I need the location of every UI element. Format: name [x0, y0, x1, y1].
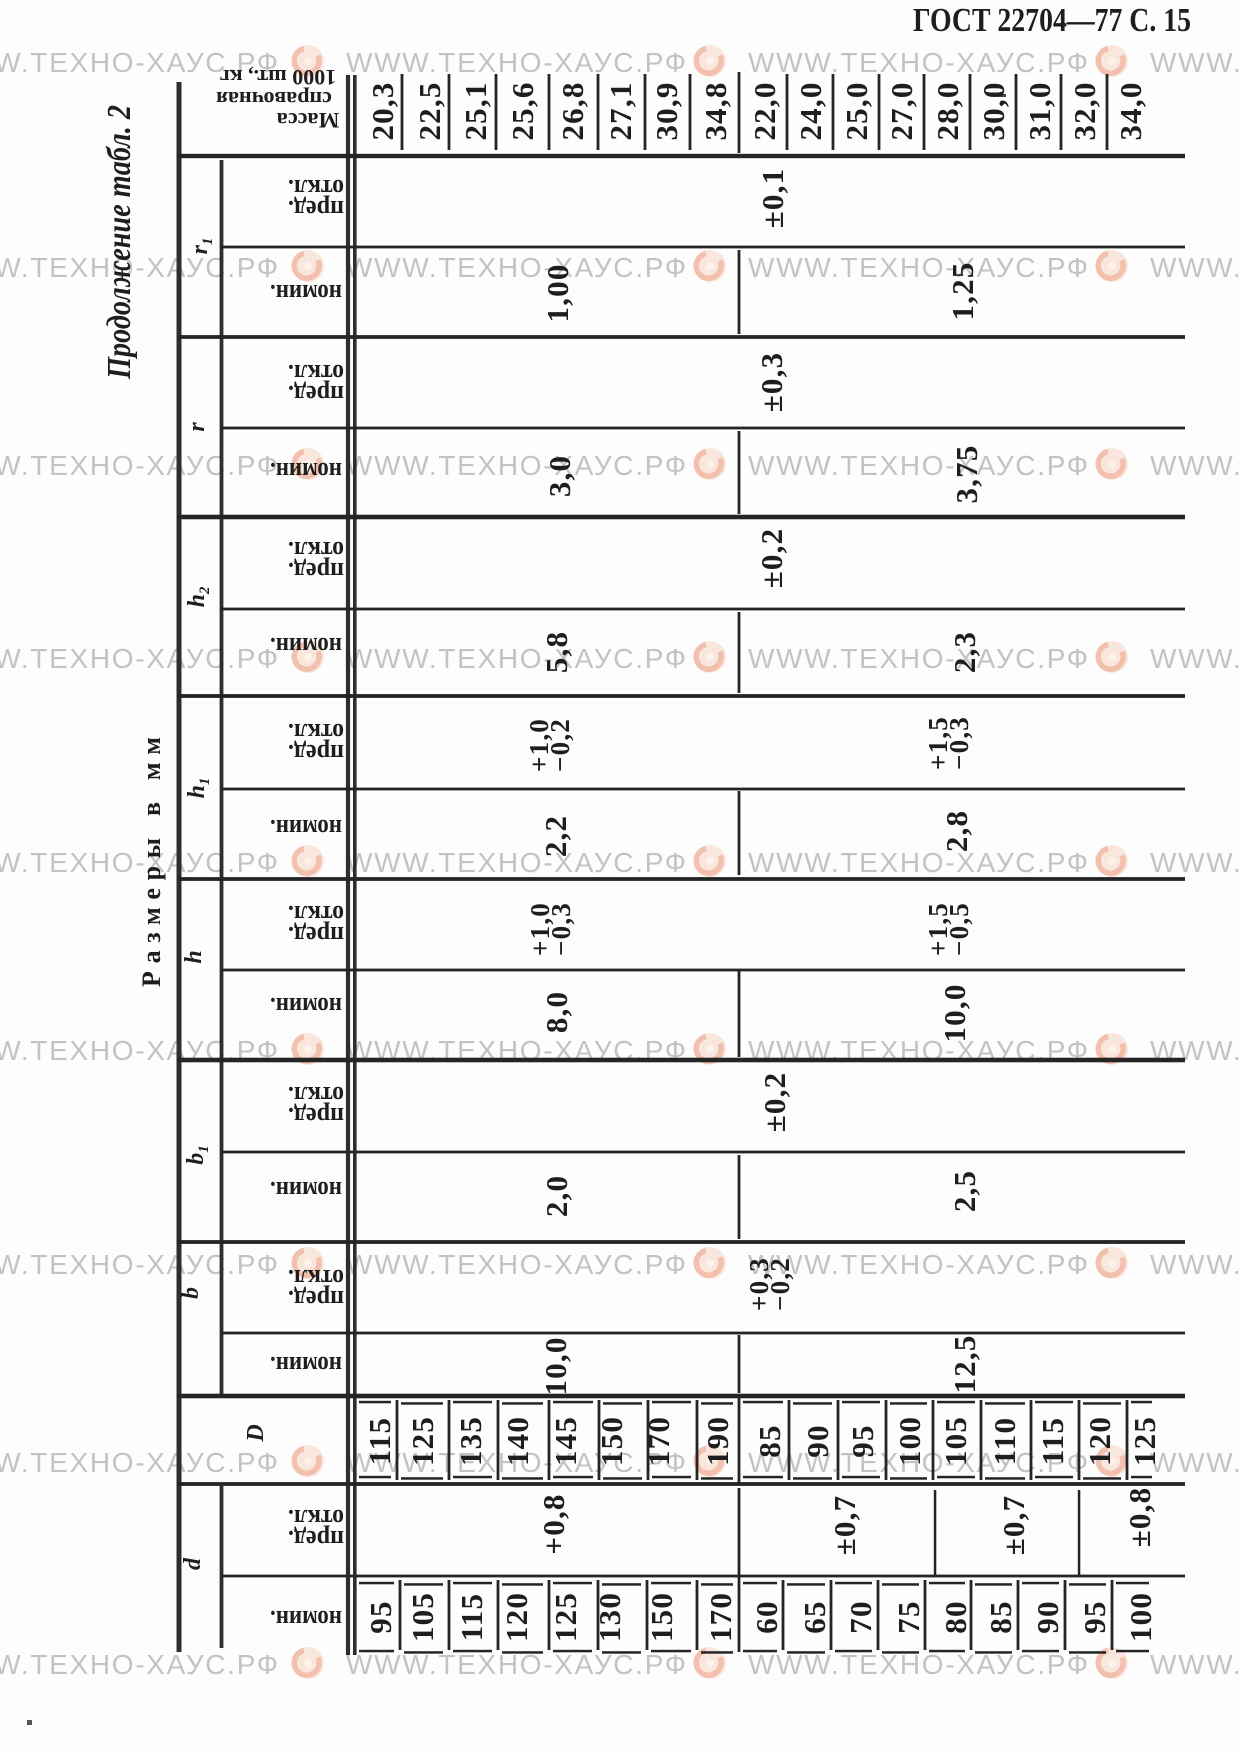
svg-text:20,3: 20,3	[365, 81, 400, 140]
svg-text:130: 130	[592, 1592, 627, 1642]
svg-text:пред.: пред.	[288, 921, 344, 950]
svg-text:WWW.ТЕХНО-ХАУС.РФ: WWW.ТЕХНО-ХАУС.РФ	[748, 847, 1090, 878]
svg-text:110: 110	[987, 1417, 1022, 1465]
svg-text:пред.: пред.	[288, 1525, 344, 1554]
svg-text:2,0: 2,0	[539, 1175, 574, 1217]
svg-text:номин.: номин.	[270, 814, 342, 843]
svg-text:170: 170	[703, 1592, 738, 1642]
svg-text:WWW.ТЕХНО-ХАУС.РФ: WWW.ТЕХНО-ХАУС.РФ	[1150, 1249, 1240, 1280]
svg-text:70: 70	[843, 1600, 878, 1633]
svg-text:WWW.ТЕХНО-ХАУС.РФ: WWW.ТЕХНО-ХАУС.РФ	[346, 450, 688, 481]
svg-text:100: 100	[892, 1416, 927, 1466]
svg-text:пред.: пред.	[288, 557, 344, 586]
svg-text:D: D	[243, 1424, 269, 1442]
svg-text:60: 60	[749, 1600, 784, 1633]
svg-text:65: 65	[797, 1600, 832, 1633]
svg-text:WWW.ТЕХНО-ХАУС.РФ: WWW.ТЕХНО-ХАУС.РФ	[0, 1447, 280, 1478]
svg-text:105: 105	[938, 1416, 973, 1466]
svg-text:номин.: номин.	[270, 1605, 342, 1634]
svg-text:−0,5: −0,5	[944, 902, 974, 956]
svg-text:95: 95	[363, 1600, 398, 1633]
svg-text:WWW.ТЕХНО-ХАУС.РФ: WWW.ТЕХНО-ХАУС.РФ	[346, 643, 688, 674]
svg-text:Продолжение табл. 2: Продолжение табл. 2	[101, 105, 138, 380]
svg-text:1000 шт., кг: 1000 шт., кг	[220, 65, 336, 90]
svg-text:2,8: 2,8	[939, 810, 974, 852]
svg-text:31,0: 31,0	[1022, 81, 1057, 140]
svg-text:80: 80	[938, 1600, 973, 1633]
svg-text:−0,2: −0,2	[545, 718, 575, 772]
svg-text:1,25: 1,25	[945, 261, 980, 320]
svg-text:3,75: 3,75	[949, 444, 984, 503]
svg-text:30,0: 30,0	[976, 81, 1011, 140]
svg-text:пред.: пред.	[288, 380, 344, 409]
svg-text:120: 120	[499, 1592, 534, 1642]
svg-text:85: 85	[983, 1600, 1018, 1633]
svg-text:75: 75	[891, 1600, 926, 1633]
svg-text:125: 125	[548, 1592, 583, 1642]
svg-text:115: 115	[1035, 1417, 1070, 1465]
svg-text:WWW.ТЕХНО-ХАУС.РФ: WWW.ТЕХНО-ХАУС.РФ	[748, 450, 1090, 481]
svg-text:±0,1: ±0,1	[755, 168, 790, 229]
svg-text:22,5: 22,5	[412, 81, 447, 140]
svg-text:пред.: пред.	[288, 1102, 344, 1131]
svg-text:WWW.ТЕХНО-ХАУС.РФ: WWW.ТЕХНО-ХАУС.РФ	[748, 252, 1090, 283]
svg-text:190: 190	[700, 1416, 735, 1466]
svg-text:27,0: 27,0	[884, 81, 919, 140]
svg-text:27,1: 27,1	[603, 81, 638, 140]
svg-text:135: 135	[453, 1416, 488, 1466]
svg-text:2,3: 2,3	[947, 631, 982, 673]
svg-text:WWW.ТЕХНО-ХАУС.РФ: WWW.ТЕХНО-ХАУС.РФ	[346, 252, 688, 283]
svg-text:WWW.ТЕХНО-ХАУС.РФ: WWW.ТЕХНО-ХАУС.РФ	[1150, 252, 1240, 283]
svg-text:−0,2: −0,2	[765, 1257, 795, 1311]
svg-text:10,0: 10,0	[937, 983, 972, 1042]
svg-text:+0,8: +0,8	[536, 1493, 571, 1554]
svg-text:±0,7: ±0,7	[996, 1495, 1031, 1556]
svg-text:2,2: 2,2	[538, 815, 573, 857]
svg-text:r1: r1	[187, 238, 216, 255]
svg-text:−0,3: −0,3	[944, 716, 974, 770]
svg-text:номин.: номин.	[270, 992, 342, 1021]
svg-text:10,0: 10,0	[538, 1336, 573, 1395]
svg-text:WWW.ТЕХНО-ХАУС.РФ: WWW.ТЕХНО-ХАУС.РФ	[748, 1249, 1090, 1280]
svg-text:±0,2: ±0,2	[754, 528, 789, 589]
svg-text:25,6: 25,6	[505, 81, 540, 140]
svg-text:пред.: пред.	[288, 739, 344, 768]
svg-text:h1: h1	[184, 778, 213, 799]
svg-text:25,1: 25,1	[458, 81, 493, 140]
svg-text:95: 95	[1077, 1600, 1112, 1633]
svg-text:WWW.ТЕХНО-ХАУС.РФ: WWW.ТЕХНО-ХАУС.РФ	[748, 643, 1090, 674]
svg-text:WWW.ТЕХНО-ХАУС.РФ: WWW.ТЕХНО-ХАУС.РФ	[1150, 450, 1240, 481]
svg-text:Масса: Масса	[277, 108, 340, 133]
svg-text:8,0: 8,0	[539, 991, 574, 1033]
svg-text:2,5: 2,5	[947, 1170, 982, 1212]
svg-text:24,0: 24,0	[793, 81, 828, 140]
svg-text:3,0: 3,0	[542, 455, 577, 497]
svg-text:WWW.ТЕХНО-ХАУС.РФ: WWW.ТЕХНО-ХАУС.РФ	[1150, 1649, 1240, 1680]
svg-text:h: h	[181, 950, 207, 963]
svg-text:WWW.ТЕХНО-ХАУС.РФ: WWW.ТЕХНО-ХАУС.РФ	[748, 47, 1090, 78]
svg-text:85: 85	[752, 1424, 787, 1457]
svg-text:WWW.ТЕХНО-ХАУС.РФ: WWW.ТЕХНО-ХАУС.РФ	[0, 252, 280, 283]
svg-text:номин.: номин.	[270, 457, 342, 486]
svg-text:номин.: номин.	[270, 279, 342, 308]
svg-text:WWW.ТЕХНО-ХАУС.РФ: WWW.ТЕХНО-ХАУС.РФ	[1150, 643, 1240, 674]
svg-text:WWW.ТЕХНО-ХАУС.РФ: WWW.ТЕХНО-ХАУС.РФ	[0, 1249, 280, 1280]
svg-text:105: 105	[405, 1592, 440, 1642]
svg-text:±0,7: ±0,7	[827, 1495, 862, 1556]
svg-text:22,0: 22,0	[747, 81, 782, 140]
svg-text:номин.: номин.	[270, 632, 342, 661]
svg-text:95: 95	[845, 1424, 880, 1457]
svg-text:WWW.ТЕХНО-ХАУС.РФ: WWW.ТЕХНО-ХАУС.РФ	[346, 1249, 688, 1280]
svg-text:25,0: 25,0	[839, 81, 874, 140]
svg-text:125: 125	[1127, 1416, 1162, 1466]
svg-text:28,0: 28,0	[930, 81, 965, 140]
svg-text:WWW.ТЕХНО-ХАУС.РФ: WWW.ТЕХНО-ХАУС.РФ	[0, 450, 280, 481]
svg-text:d: d	[180, 1557, 206, 1570]
svg-text:125: 125	[405, 1416, 440, 1466]
svg-text:WWW.ТЕХНО-ХАУС.РФ: WWW.ТЕХНО-ХАУС.РФ	[346, 847, 688, 878]
svg-text:1,00: 1,00	[540, 263, 575, 322]
svg-text:150: 150	[644, 1592, 679, 1642]
svg-text:115: 115	[454, 1593, 489, 1641]
svg-text:±0,2: ±0,2	[757, 1072, 792, 1133]
svg-text:120: 120	[1082, 1416, 1117, 1466]
svg-text:90: 90	[1030, 1600, 1065, 1633]
svg-text:26,8: 26,8	[555, 81, 590, 140]
svg-text:h2: h2	[184, 586, 213, 607]
svg-text:±0,3: ±0,3	[754, 352, 789, 413]
svg-text:100: 100	[1123, 1592, 1158, 1642]
svg-text:WWW.ТЕХНО-ХАУС.РФ: WWW.ТЕХНО-ХАУС.РФ	[1150, 847, 1240, 878]
svg-text:12,5: 12,5	[947, 1334, 982, 1393]
svg-text:пред.: пред.	[288, 195, 344, 224]
svg-text:WWW.ТЕХНО-ХАУС.РФ: WWW.ТЕХНО-ХАУС.РФ	[0, 643, 280, 674]
svg-text:170: 170	[641, 1416, 676, 1466]
svg-text:WWW.ТЕХНО-ХАУС.РФ: WWW.ТЕХНО-ХАУС.РФ	[1150, 47, 1240, 78]
svg-text:90: 90	[800, 1424, 835, 1457]
svg-text:номин.: номин.	[270, 1351, 342, 1380]
svg-text:140: 140	[500, 1416, 535, 1466]
svg-text:115: 115	[362, 1417, 397, 1465]
svg-text:150: 150	[594, 1416, 629, 1466]
svg-text:34,0: 34,0	[1113, 81, 1148, 140]
svg-text:30,9: 30,9	[649, 81, 684, 140]
svg-text:r: r	[184, 422, 210, 432]
svg-text:b: b	[178, 1287, 204, 1299]
svg-text:±0,8: ±0,8	[1122, 1487, 1157, 1548]
svg-text:b1: b1	[183, 1145, 212, 1165]
svg-text:номин.: номин.	[270, 1176, 342, 1205]
svg-text:ГОСТ 22704—77 С. 15: ГОСТ 22704—77 С. 15	[913, 2, 1191, 39]
svg-text:пред.: пред.	[288, 1285, 344, 1314]
svg-text:−0,3: −0,3	[546, 902, 576, 956]
svg-text:5,8: 5,8	[539, 631, 574, 673]
svg-text:WWW.ТЕХНО-ХАУС.РФ: WWW.ТЕХНО-ХАУС.РФ	[1150, 1447, 1240, 1478]
svg-text:145: 145	[548, 1416, 583, 1466]
svg-text:32,0: 32,0	[1067, 81, 1102, 140]
svg-text:WWW.ТЕХНО-ХАУС.РФ: WWW.ТЕХНО-ХАУС.РФ	[0, 1649, 280, 1680]
svg-text:WWW.ТЕХНО-ХАУС.РФ: WWW.ТЕХНО-ХАУС.РФ	[346, 47, 688, 78]
svg-text:34,8: 34,8	[698, 81, 733, 140]
